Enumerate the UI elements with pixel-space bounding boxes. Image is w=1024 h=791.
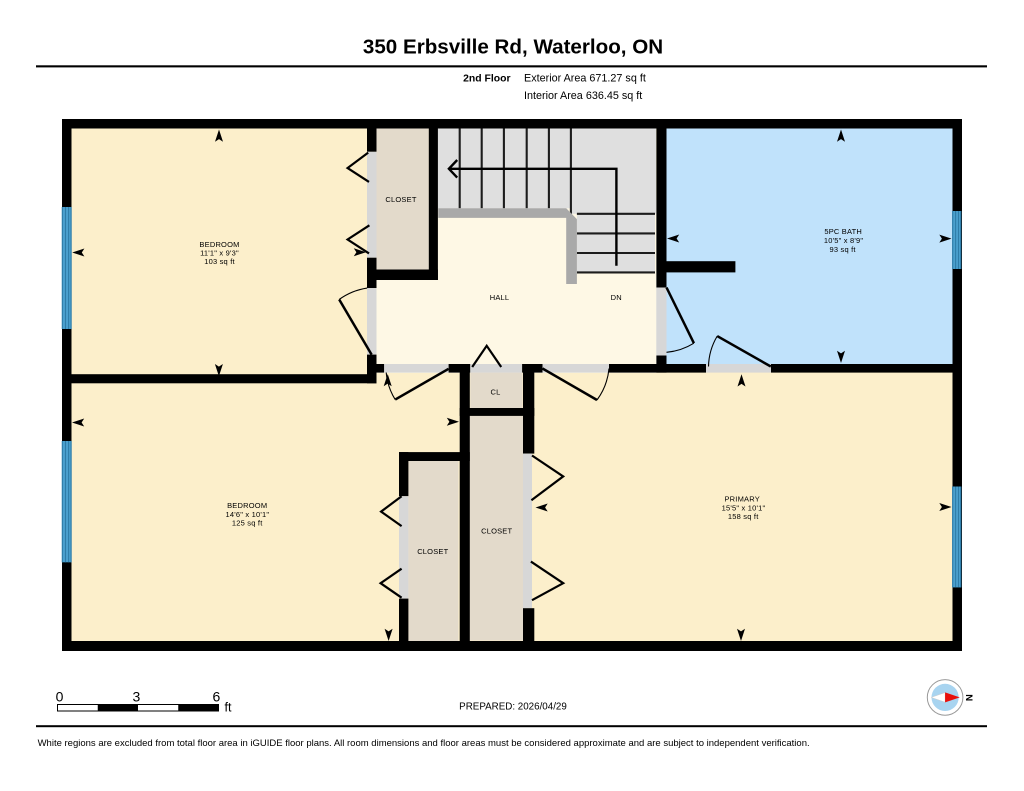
svg-text:White regions are excluded fro: White regions are excluded from total fl… (38, 738, 810, 749)
svg-text:158 sq ft: 158 sq ft (728, 512, 759, 521)
svg-text:2nd Floor: 2nd Floor (463, 74, 510, 85)
svg-text:PREPARED: 2026/04/29: PREPARED: 2026/04/29 (459, 702, 567, 713)
svg-text:6: 6 (213, 689, 221, 705)
svg-text:N: N (963, 694, 974, 701)
svg-text:HALL: HALL (490, 293, 510, 302)
svg-text:Interior Area 636.45 sq ft: Interior Area 636.45 sq ft (524, 90, 642, 102)
svg-text:PRIMARY: PRIMARY (724, 495, 759, 504)
svg-text:3: 3 (133, 689, 141, 705)
svg-text:93 sq ft: 93 sq ft (829, 245, 856, 254)
svg-text:BEDROOM: BEDROOM (227, 501, 267, 510)
svg-text:103 sq ft: 103 sq ft (204, 257, 235, 266)
svg-text:350 Erbsville Rd, Waterloo, ON: 350 Erbsville Rd, Waterloo, ON (363, 36, 663, 59)
svg-text:0: 0 (56, 689, 64, 705)
svg-text:CLOSET: CLOSET (385, 195, 416, 204)
svg-text:125 sq ft: 125 sq ft (232, 519, 263, 528)
svg-text:10'5" x 8'9": 10'5" x 8'9" (824, 236, 863, 245)
svg-text:CLOSET: CLOSET (481, 527, 512, 536)
svg-text:CL: CL (491, 388, 501, 397)
svg-text:Exterior Area 671.27 sq ft: Exterior Area 671.27 sq ft (524, 73, 646, 85)
svg-text:ft: ft (225, 701, 232, 715)
svg-text:DN: DN (611, 293, 622, 302)
svg-text:5PC BATH: 5PC BATH (824, 227, 862, 236)
svg-text:CLOSET: CLOSET (417, 547, 448, 556)
